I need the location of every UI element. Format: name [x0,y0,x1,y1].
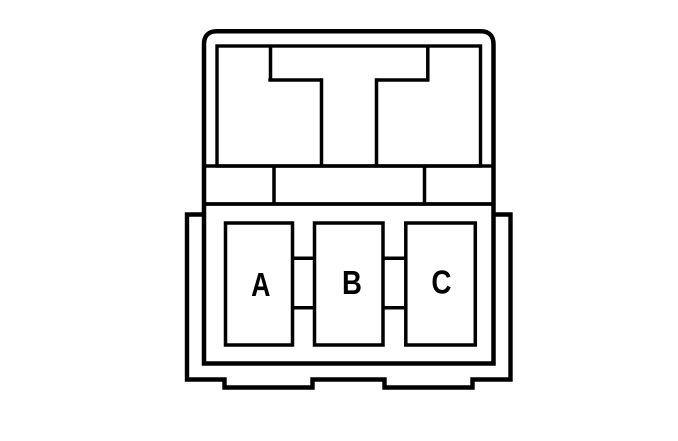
svg-text:B: B [342,265,362,302]
svg-text:A: A [251,268,270,304]
svg-text:C: C [431,264,451,301]
